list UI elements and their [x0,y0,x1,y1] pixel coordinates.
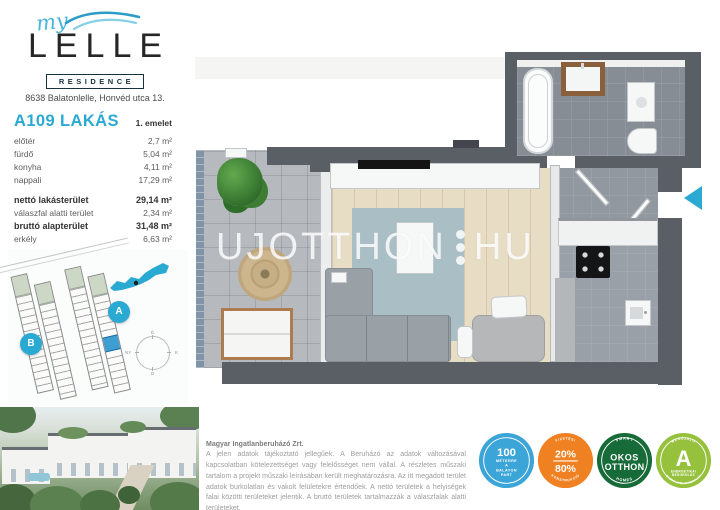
apartment-floor: 1. emelet [136,118,172,128]
table-row: nappali17,29 m² [14,174,172,187]
svg-text:OKOS: OKOS [610,453,638,463]
sofa-seat [325,315,451,362]
entrance-arrow-icon [684,186,702,210]
payment-badge: FIZETÉSI 20% 80% KONSTRUKCIÓ [537,432,594,489]
table-row: erkély6,63 m² [14,233,172,246]
svg-text:MÉTERRE: MÉTERRE [496,458,517,463]
apartment-id: A109 LAKÁS [14,112,119,131]
washing-machine [627,82,655,122]
table-row: bruttó alapterület31,48 m² [14,220,172,233]
kitchen-sink [625,300,651,326]
table-row: nettó lakásterület29,14 m² [14,194,172,207]
table-row: fürdő5,04 m² [14,148,172,161]
svg-text:PART: PART [501,473,513,477]
bathtub [523,68,553,154]
tv [358,160,430,169]
company-name: Magyar Ingatlanberuházó Zrt. [206,441,466,448]
dining-table [472,315,545,362]
sofa-pillow [331,272,347,283]
building-a-badge: A [108,301,130,323]
svg-text:20%: 20% [555,450,576,461]
watermark: UJOTTHON HU [216,226,535,269]
site-plan: A B É K D NY [8,250,188,405]
balaton-distance-badge: 100 MÉTERRE A BALATON PART [478,432,535,489]
disclaimer: Magyar Ingatlanberuházó Zrt. A jelen ada… [206,441,466,510]
highlighted-unit [102,334,120,352]
toilet [627,128,657,154]
table-row: válaszfal alatti terület2,34 m² [14,207,172,220]
disclaimer-text: A jelen adatok tájékoztató jellegűek. A … [206,450,466,510]
watermark-dots [456,230,465,265]
sink-vanity [561,62,605,96]
daybed [221,308,293,360]
brochure-page: my LELLE RESIDENCE 8638 Balatonlelle, Ho… [0,0,720,510]
svg-text:A: A [505,464,508,468]
cooktop [576,246,610,278]
residence-photo [0,407,199,510]
kitchen-counter [558,218,658,246]
dining-chair [457,326,473,358]
svg-text:BALATON: BALATON [496,468,517,472]
compass-icon: É K D NY [136,336,170,370]
svg-text:100: 100 [497,447,516,459]
svg-text:A: A [676,446,692,471]
floor-plan [195,0,720,420]
svg-text:OTTHON: OTTHON [605,462,645,472]
logo-name: LELLE [0,27,190,66]
table-row: előtér2,7 m² [14,135,172,148]
smart-home-badge: SMART OKOS OTTHON HOMES [596,432,653,489]
photo-pool [28,473,50,481]
svg-text:80%: 80% [555,464,576,475]
building-b-badge: B [20,333,42,355]
kitchen-base-cabinet [555,278,575,362]
feature-badges: 100 MÉTERRE A BALATON PART FIZETÉSI 20% … [478,432,712,489]
energy-rating-badge: MEGÚJULÓ A ENERGETIKAI BESOROLÁS ENERGIA… [655,432,712,489]
bottom-wall [222,362,682,384]
planter [225,148,247,158]
plant [217,158,263,206]
balaton-lake-icon [108,260,172,298]
dining-chair [490,295,527,319]
balcony-railing [196,150,204,368]
logo-tagline: RESIDENCE [46,74,144,89]
address-line: 8638 Balatonlelle, Honvéd utca 13. [0,93,190,103]
svg-text:BESOROLÁS: BESOROLÁS [672,472,696,477]
table-row: konyha4,11 m² [14,161,172,174]
